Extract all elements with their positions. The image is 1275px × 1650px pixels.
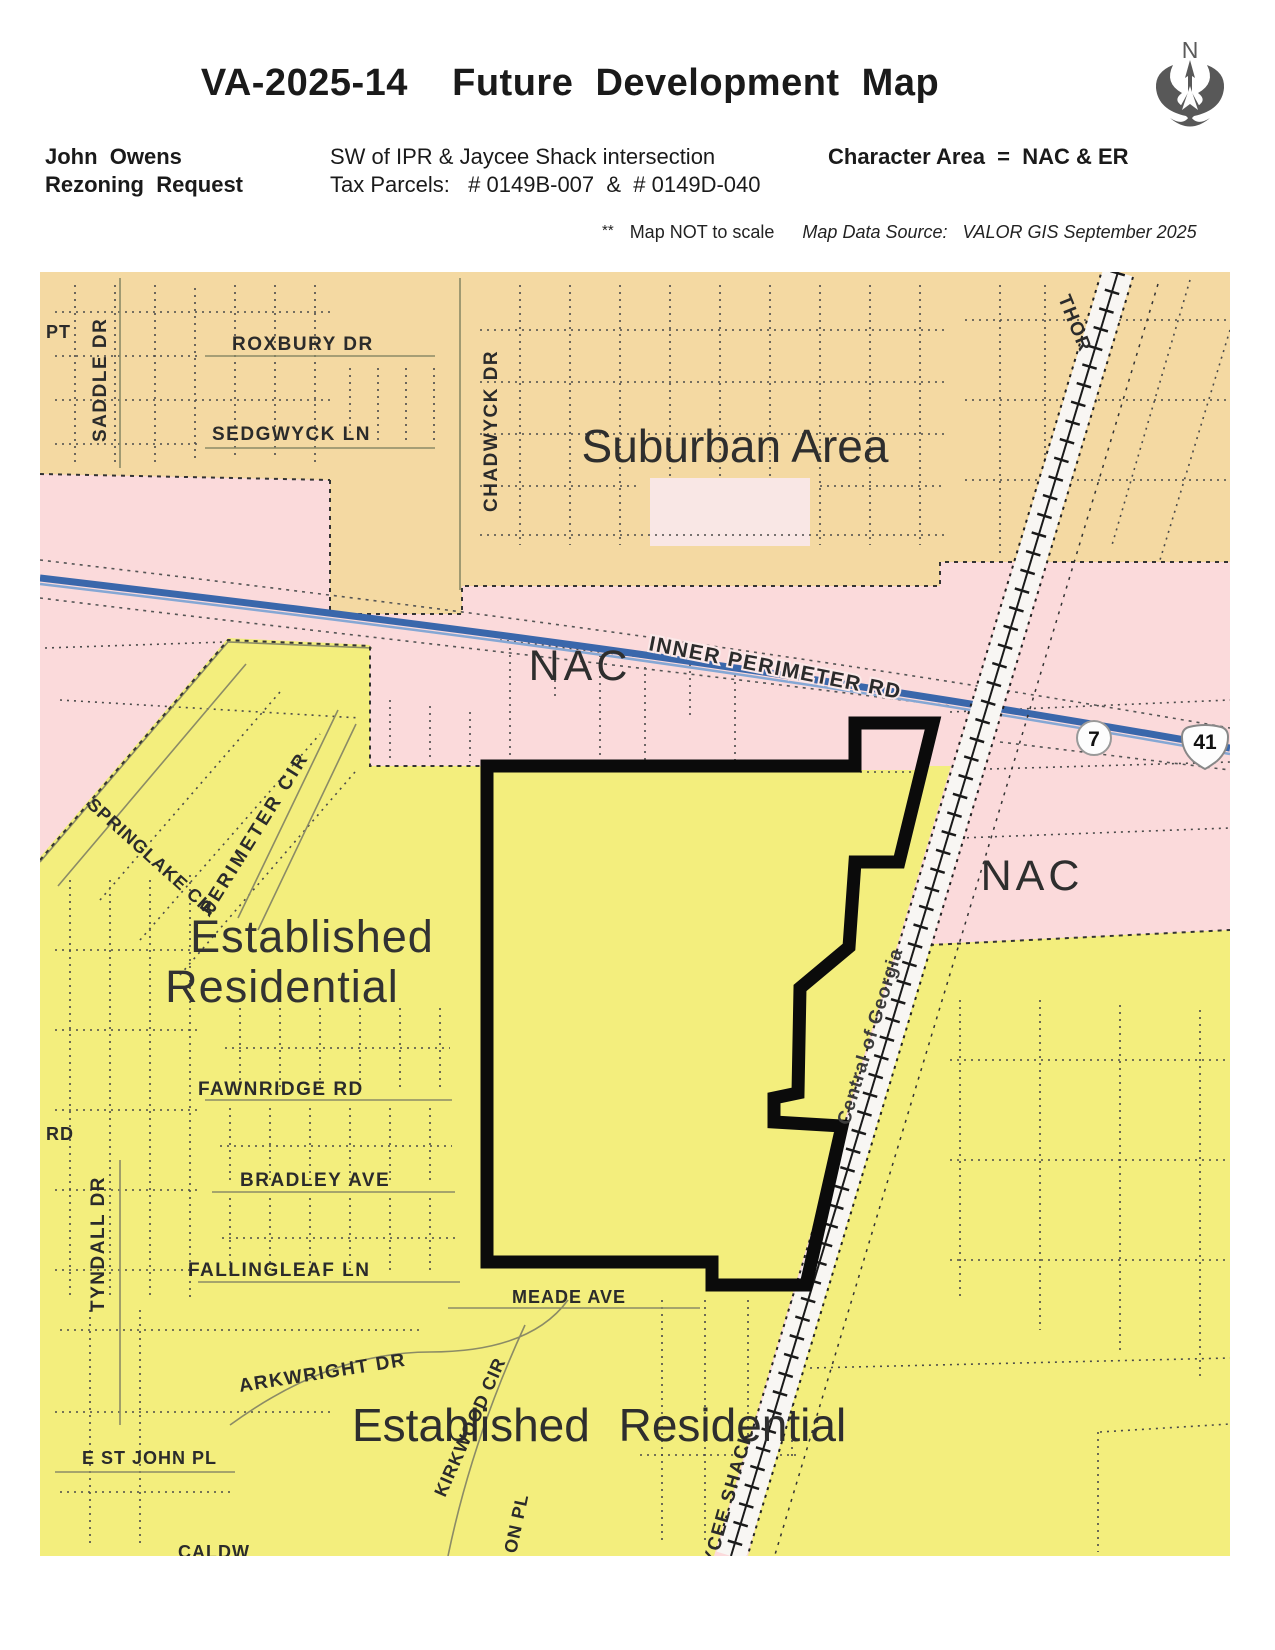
- street-caldwell-partial: CALDW: [178, 1542, 250, 1556]
- map-canvas: Suburban Area NAC NAC Established Reside…: [40, 272, 1230, 1556]
- eagle-icon: [1156, 60, 1224, 127]
- area-label-nac-east: NAC: [981, 852, 1084, 900]
- tax-parcels: Tax Parcels: # 0149B-007 & # 0149D-040: [330, 171, 760, 199]
- street-roxbury-dr: ROXBURY DR: [232, 334, 374, 355]
- us-route-41-number: 41: [1193, 731, 1217, 754]
- applicant-block: John Owens Rezoning Request: [45, 143, 243, 199]
- area-label-er-bottom: Established Residential: [352, 1399, 846, 1451]
- street-rd-partial: RD: [46, 1124, 74, 1144]
- area-label-er-left-line2: Residential: [165, 961, 399, 1012]
- north-letter: N: [1182, 37, 1199, 63]
- street-pt: PT: [46, 322, 71, 342]
- location-description: SW of IPR & Jaycee Shack intersection: [330, 143, 760, 171]
- street-tyndall-dr: TYNDALL DR: [88, 1176, 109, 1312]
- state-route-7-shield: 7: [1077, 721, 1111, 755]
- north-arrow-eagle-logo: N: [1142, 34, 1234, 136]
- note-data-source: Map Data Source: VALOR GIS September 202…: [802, 222, 1196, 242]
- street-fawnridge-rd: FAWNRIDGE RD: [198, 1079, 364, 1100]
- street-chadwyck-dr: CHADWYCK DR: [481, 350, 502, 512]
- location-block: SW of IPR & Jaycee Shack intersection Ta…: [330, 143, 760, 199]
- area-label-suburban: Suburban Area: [582, 420, 889, 472]
- area-label-er-left-line1: Established: [190, 911, 434, 962]
- note-marker: **: [602, 222, 614, 239]
- area-label-nac-west: NAC: [529, 642, 632, 690]
- character-area-label: Character Area = NAC & ER: [828, 143, 1129, 171]
- street-meade-ave: MEADE AVE: [512, 1287, 626, 1307]
- street-saddle-dr: SADDLE DR: [90, 318, 111, 442]
- note-not-to-scale: Map NOT to scale: [630, 222, 775, 242]
- street-bradley-ave: BRADLEY AVE: [240, 1170, 390, 1191]
- state-route-7-number: 7: [1088, 728, 1100, 751]
- street-sedgwyck-ln: SEDGWYCK LN: [212, 424, 371, 445]
- page-title: VA-2025-14 Future Development Map: [40, 62, 1100, 105]
- applicant-name: John Owens: [45, 143, 243, 171]
- street-e-st-john-pl: E ST JOHN PL: [82, 1448, 217, 1468]
- applicant-request-type: Rezoning Request: [45, 171, 243, 199]
- map-notes: **Map NOT to scaleMap Data Source: VALOR…: [602, 222, 1197, 243]
- street-fallingleaf-ln: FALLINGLEAF LN: [188, 1260, 370, 1281]
- light-parcel-block: [650, 478, 810, 546]
